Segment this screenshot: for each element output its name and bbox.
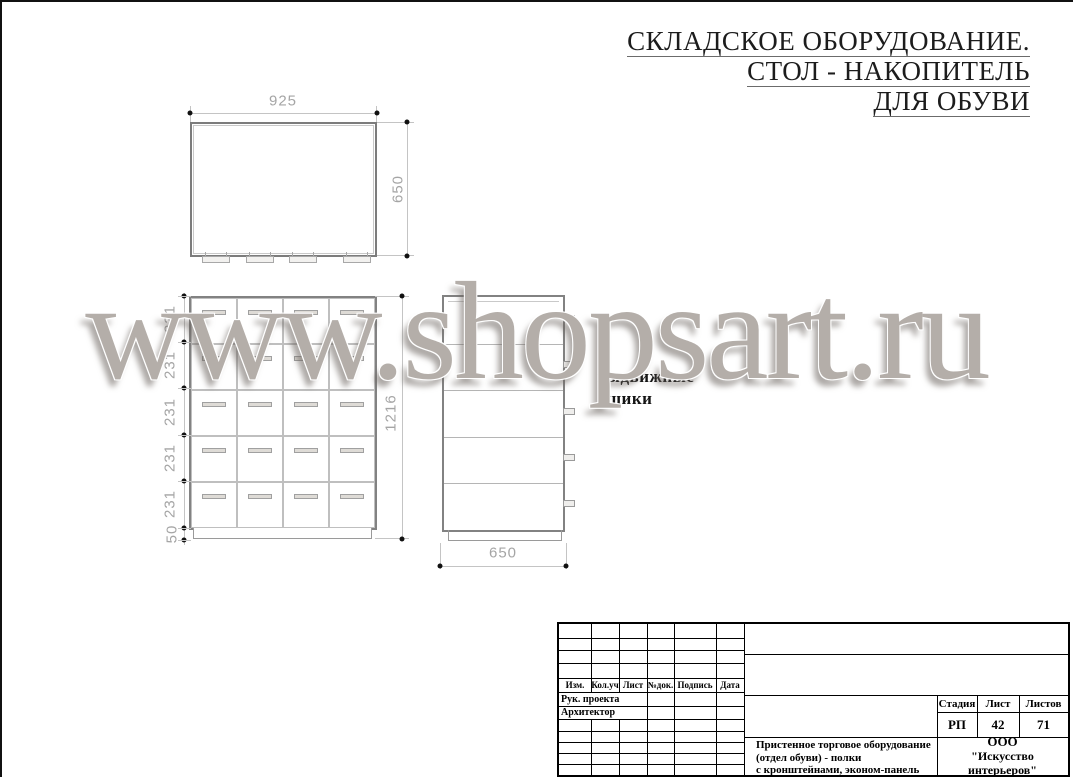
drawer-handle <box>202 310 226 315</box>
dim-dot <box>405 254 410 259</box>
drawer-handle <box>248 310 272 315</box>
title-block: Изм. Кол.уч Лист №док. Подпись Дата Рук.… <box>557 622 1070 777</box>
side-row-line <box>444 344 563 345</box>
drawer-cell <box>191 482 237 528</box>
ext-line <box>178 388 191 389</box>
drawer-handle <box>248 448 272 453</box>
dim-label-650-depth: 650 <box>390 175 407 203</box>
drawer-handle <box>340 448 364 453</box>
tb-col-koluch: Кол.уч <box>591 678 619 692</box>
dim-label-650-width: 650 <box>489 545 517 562</box>
drawer-cell <box>191 436 237 482</box>
drawer-cell <box>237 482 283 528</box>
dim-dot <box>438 564 443 569</box>
front-plinth <box>193 528 372 539</box>
drawer-slide-tab <box>563 361 575 368</box>
tb-sheet-header: Лист <box>977 695 1019 712</box>
drawer-handle <box>340 494 364 499</box>
dim-label-row: 231 <box>162 305 179 333</box>
dim-label-row: 231 <box>162 490 179 518</box>
drawer-handle <box>248 356 272 361</box>
drawer-slide-tab <box>563 454 575 461</box>
dim-dot <box>400 294 405 299</box>
side-plinth <box>448 530 562 541</box>
annotation-line-2: ящики <box>597 388 694 410</box>
tb-col-list: Лист <box>619 678 647 692</box>
drawing-sheet: СКЛАДСКОЕ ОБОРУДОВАНИЕ. СТОЛ - НАКОПИТЕЛ… <box>0 0 1073 777</box>
front-view <box>189 296 377 530</box>
drawer-handle <box>294 448 318 453</box>
drawer-cell <box>283 436 329 482</box>
drawer-cell <box>283 390 329 436</box>
drawer-handle <box>294 356 318 361</box>
ext-line <box>178 296 191 297</box>
drawer-cell <box>329 436 375 482</box>
ext-line <box>178 342 191 343</box>
dim-line-925 <box>190 113 377 114</box>
drawer-cell <box>191 344 237 390</box>
drawer-slide-tab <box>563 315 575 322</box>
dim-label-row: 231 <box>162 398 179 426</box>
tb-stage-header: Стадия <box>937 695 977 712</box>
drawer-handle <box>340 310 364 315</box>
drawer-handle <box>202 494 226 499</box>
tb-role-ruk-proekta: Рук. проекта <box>559 692 649 706</box>
drawer-handle <box>340 402 364 407</box>
dim-line-650-depth <box>407 122 408 256</box>
drawer-cell <box>329 390 375 436</box>
dim-dot <box>405 120 410 125</box>
drawer-cell <box>237 298 283 344</box>
drawer-handle <box>202 402 226 407</box>
tb-company-line-1: ООО <box>987 735 1017 749</box>
tb-company: ООО "Искусство интерьеров" <box>937 737 1068 775</box>
dim-line-1216 <box>402 296 403 539</box>
drawer-handle <box>248 494 272 499</box>
tb-description-line-1: Пристенное торговое оборудование <box>756 739 936 752</box>
drawer-handle <box>294 310 318 315</box>
dim-line-650-width <box>440 566 567 567</box>
annotation-line-1: выдвижные <box>597 366 694 388</box>
dim-label-row: 231 <box>162 444 179 472</box>
drawer-slide-tab <box>563 408 575 415</box>
page-title: СКЛАДСКОЕ ОБОРУДОВАНИЕ. СТОЛ - НАКОПИТЕЛ… <box>627 27 1030 117</box>
drawer-handle <box>248 402 272 407</box>
side-view <box>442 295 565 532</box>
dim-chain-line <box>184 293 185 545</box>
foot <box>246 256 274 263</box>
drawer-grid <box>191 298 375 528</box>
tb-description: Пристенное торговое оборудование (отдел … <box>756 739 936 777</box>
title-line-1: СКЛАДСКОЕ ОБОРУДОВАНИЕ. <box>627 27 1030 57</box>
dim-label-row: 231 <box>162 351 179 379</box>
ext-line <box>178 481 191 482</box>
dim-label-50: 50 <box>164 525 181 544</box>
tb-sheets-total: 71 <box>1019 712 1068 737</box>
tb-stage-value: РП <box>937 712 977 737</box>
foot <box>202 256 230 263</box>
dim-label-925: 925 <box>269 93 297 110</box>
tb-description-line-2: (отдел обуви) - полки <box>756 752 936 765</box>
dim-dot <box>375 111 380 116</box>
dim-dot <box>188 111 193 116</box>
dim-dot <box>564 564 569 569</box>
tb-col-data: Дата <box>716 678 744 692</box>
drawer-handle <box>340 356 364 361</box>
drawer-cell <box>191 298 237 344</box>
drawer-handle <box>294 402 318 407</box>
drawer-cell <box>283 344 329 390</box>
tb-col-izm: Изм. <box>559 678 591 692</box>
side-row-line <box>444 437 563 438</box>
sheet-border-left <box>0 0 2 777</box>
drawer-handle <box>294 494 318 499</box>
title-line-2: СТОЛ - НАКОПИТЕЛЬ <box>747 57 1030 87</box>
annotation-drawers: выдвижные ящики <box>597 366 694 410</box>
top-view <box>190 122 377 257</box>
drawer-cell <box>283 482 329 528</box>
tb-company-line-2: "Искусство интерьеров" <box>937 749 1068 777</box>
drawer-handle <box>202 356 226 361</box>
drawer-slide-tab <box>563 500 575 507</box>
side-row-line <box>444 390 563 391</box>
drawer-cell <box>191 390 237 436</box>
dim-dot <box>400 537 405 542</box>
side-row-line <box>444 483 563 484</box>
tb-description-line-3: с кронштейнами, эконом-панель <box>756 764 936 777</box>
tb-sheets-header: Листов <box>1019 695 1068 712</box>
drawer-cell <box>237 436 283 482</box>
tb-col-ndok: №док. <box>647 678 674 692</box>
dim-label-1216: 1216 <box>383 394 400 431</box>
drawer-cell <box>329 298 375 344</box>
foot <box>343 256 371 263</box>
sheet-border-top <box>0 0 1073 2</box>
ext-line <box>178 435 191 436</box>
drawer-cell <box>283 298 329 344</box>
tb-col-podpis: Подпись <box>674 678 716 692</box>
drawer-cell <box>237 344 283 390</box>
drawer-handle <box>202 448 226 453</box>
drawer-cell <box>237 390 283 436</box>
drawer-cell <box>329 344 375 390</box>
drawer-cell <box>329 482 375 528</box>
title-line-3: ДЛЯ ОБУВИ <box>873 87 1030 117</box>
tb-role-arhitektor: Архитектор <box>559 706 649 719</box>
foot <box>289 256 317 263</box>
